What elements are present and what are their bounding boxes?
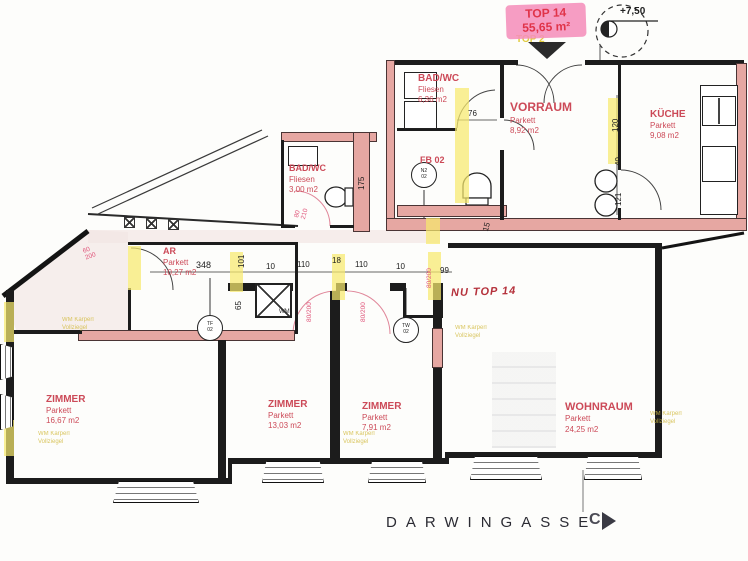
room-label-kueche: KÜCHE Parkett 9,08 m2 <box>650 108 686 142</box>
room-area: 13,03 m2 <box>268 421 307 431</box>
window-bay-left-1 <box>0 344 13 380</box>
dim-101: 101 <box>237 255 246 268</box>
top-wall-left <box>387 60 518 65</box>
kitchen-door-arc <box>621 170 661 210</box>
symbol-3-num: 02 <box>421 175 427 181</box>
annotation-line: WM Karperl <box>343 430 375 438</box>
door-size-wohnraum: 80/200 <box>426 268 433 288</box>
boiler-circle-1 <box>595 170 617 192</box>
toilet-top-tank <box>466 198 488 205</box>
dim-10-b: 10 <box>396 262 405 271</box>
room-label-bad-wc-annex: BAD/WC Fliesen 3,00 m2 <box>289 163 326 195</box>
dim-121: 121 <box>614 193 623 206</box>
room-name: WOHNRAUM <box>565 400 633 414</box>
z3-wohnraum-wall <box>433 283 442 461</box>
dim-120: 120 <box>611 119 620 132</box>
annex-bottom-wall-2 <box>330 225 354 228</box>
toilet-annex-tank <box>345 188 353 206</box>
room-finish: Parkett <box>46 406 85 416</box>
annotation-line: Vollziegel <box>455 332 487 340</box>
vorraum-kueche-wall-upper <box>618 60 621 170</box>
door-size-z3: 80/200 <box>360 302 367 322</box>
symbol-circle-1: TF 02 <box>197 315 223 341</box>
ar-bottom-band <box>78 330 295 341</box>
corridor-post-3 <box>168 219 179 230</box>
floor-plan-canvas: WM TF 02 TW 02 N2 02 BAD/WC Fliesen 6,36… <box>0 0 748 561</box>
window-bay-z3 <box>368 461 426 483</box>
annotation-zimmer1: WM Karperl Vollziegel <box>38 430 70 446</box>
dim-76: 76 <box>468 109 477 118</box>
z1-bottom-wall <box>6 478 228 484</box>
window-bay-z2 <box>262 461 324 483</box>
dim-175: 175 <box>357 177 366 190</box>
niche-left <box>403 283 406 318</box>
wc-bottom-band <box>397 205 507 217</box>
annotation-line: Vollziegel <box>38 438 70 446</box>
annotation-line: WM Karperl <box>62 316 94 324</box>
symbol-circle-3: N2 02 <box>411 162 437 188</box>
room-finish: Parkett <box>565 414 633 424</box>
upper-bottom-band <box>386 218 747 231</box>
bath-vorraum-wall-lower <box>500 150 504 220</box>
ar-right-wall <box>295 242 298 334</box>
room-area: 16,67 m2 <box>46 416 85 426</box>
elevation-symbol-fill <box>601 21 609 37</box>
highlight-left-wall-1 <box>4 302 14 342</box>
room-name: ZIMMER <box>46 393 85 406</box>
room-name: AR <box>163 246 196 258</box>
room-label-ar: AR Parkett 10,27 m2 <box>163 246 196 278</box>
dim-18: 18 <box>332 256 341 265</box>
annex-left-wall <box>281 140 284 225</box>
wm-closet-label: WM <box>279 309 290 315</box>
elevation-value: +7,50 <box>620 6 645 17</box>
rooms-top-wall-b <box>390 283 403 291</box>
room-label-vorraum: VORRAUM Parkett 8,92 m2 <box>510 100 572 136</box>
zimmer3-door-arc <box>347 291 390 334</box>
ar-top-wall <box>128 242 298 245</box>
corridor-post-1 <box>124 217 135 228</box>
symbol-circle-2: TW 02 <box>393 317 419 343</box>
window-bay-w1 <box>470 456 542 480</box>
room-finish: Parkett <box>268 411 307 421</box>
entrance-door-arc-right <box>544 65 582 103</box>
room-name: ZIMMER <box>362 400 401 413</box>
room-finish: Fliesen <box>418 85 459 95</box>
unit-marker-box: TOP 14 55,65 m² <box>505 3 586 39</box>
room-area: 24,25 m2 <box>565 425 633 435</box>
neighbor-boundary-1 <box>92 130 262 208</box>
window-bay-z1 <box>113 481 199 503</box>
street-label: DARWINGASSE <box>386 514 597 531</box>
wohnraum-top-wall <box>448 243 662 248</box>
annotation-wohnraum: WM Karperl Vollziegel <box>455 324 487 340</box>
z2-z3-wall <box>330 291 340 461</box>
room-area: 10,27 m2 <box>163 268 196 278</box>
ar-left-wall-stub <box>128 288 131 330</box>
annotation-line: WM Karperl <box>38 430 70 438</box>
annotation-line: Vollziegel <box>650 418 682 426</box>
room-label-bad-wc-top: BAD/WC Fliesen 6,36 m2 <box>418 72 459 106</box>
door-size-z2: 80/200 <box>306 302 313 322</box>
window-bay-w2 <box>584 456 642 480</box>
unit-area: 55,65 m² <box>510 20 582 36</box>
annotation-line: WM Karperl <box>650 410 682 418</box>
annex-bottom-wall-1 <box>281 225 295 228</box>
section-marker-arrow-icon <box>602 512 616 530</box>
corridor-upper-edge <box>88 214 298 226</box>
room-area: 3,00 m2 <box>289 185 326 195</box>
kitchen-sink-divider <box>718 98 720 124</box>
room-label-wohnraum: WOHNRAUM Parkett 24,25 m2 <box>565 400 633 435</box>
highlight-wc-bottom <box>426 218 440 244</box>
corridor-post-2 <box>146 218 157 229</box>
dim-10-a: 10 <box>266 262 275 271</box>
symbol-2-num: 02 <box>403 330 409 336</box>
room-finish: Parkett <box>650 121 686 131</box>
annotation-left-wall: WM Karperl Vollziegel <box>62 316 94 332</box>
entrance-door-arc-left <box>516 65 554 103</box>
dim-110-a: 110 <box>297 260 310 269</box>
dim-110-b: 110 <box>355 260 368 269</box>
room-name: BAD/WC <box>289 163 326 175</box>
room-name: KÜCHE <box>650 108 686 121</box>
entrance-triangle-icon <box>528 42 566 59</box>
z3-wohnraum-pink <box>432 328 443 368</box>
room-finish: Parkett <box>163 258 196 268</box>
symbol-1-num: 02 <box>207 328 213 334</box>
bath-vorraum-wall-upper <box>500 60 504 118</box>
fb02-label: FB 02 <box>420 155 445 165</box>
window-bay-left-2 <box>0 394 13 430</box>
room-area: 9,08 m2 <box>650 131 686 141</box>
room-name: VORRAUM <box>510 100 572 116</box>
room-area: 6,36 m2 <box>418 95 459 105</box>
toilet-annex-bowl <box>325 187 347 207</box>
facade-step-2 <box>445 452 449 464</box>
highlight-ar-door <box>128 246 141 290</box>
wohnraum-faint-steps <box>492 352 556 448</box>
neighbor-boundary-2 <box>98 136 268 214</box>
room-finish: Parkett <box>510 116 572 126</box>
vorraum-kueche-wall-lower <box>618 208 621 220</box>
kitchen-stove <box>702 146 736 182</box>
room-name: BAD/WC <box>418 72 459 85</box>
room-label-zimmer-2: ZIMMER Parkett 13,03 m2 <box>268 398 307 432</box>
room-finish: Parkett <box>362 413 401 423</box>
annotation-line: WM Karperl <box>455 324 487 332</box>
room-name: ZIMMER <box>268 398 307 411</box>
annotation-line: Vollziegel <box>62 324 94 332</box>
section-marker-letter: C <box>589 511 601 529</box>
right-diagonal-wall <box>662 233 744 248</box>
dim-99: 99 <box>440 266 449 275</box>
upper-left-wall <box>386 60 395 220</box>
dim-40: 40 <box>614 157 623 166</box>
dim-348: 348 <box>196 260 211 270</box>
top-wall-right <box>585 60 744 65</box>
room-label-zimmer-1: ZIMMER Parkett 16,67 m2 <box>46 393 85 427</box>
facade-step-1 <box>228 458 232 484</box>
annotation-zimmer2: WM Karperl Vollziegel <box>343 430 375 446</box>
annotation-line: Vollziegel <box>343 438 375 446</box>
handwritten-note: NU TOP 14 <box>451 285 517 299</box>
room-area: 8,92 m2 <box>510 126 572 136</box>
room-label-zimmer-3: ZIMMER Parkett 7,91 m2 <box>362 400 401 434</box>
dim-65: 65 <box>234 301 243 310</box>
z1-z2-wall <box>218 340 226 480</box>
room-finish: Fliesen <box>289 175 326 185</box>
annotation-kueche: WM Karperl Vollziegel <box>650 410 682 426</box>
